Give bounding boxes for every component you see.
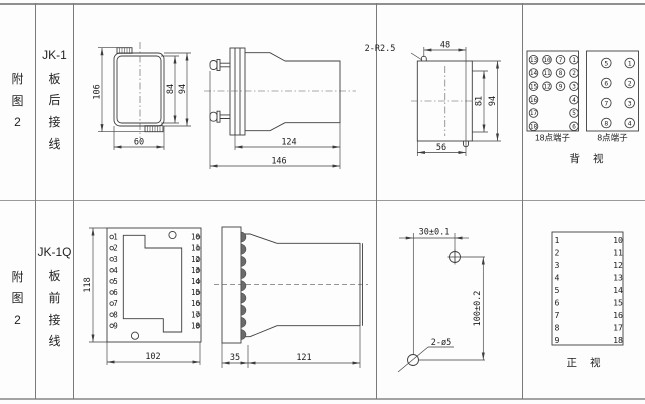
model-name: JK-1 bbox=[42, 48, 67, 62]
dim-height: 118 bbox=[83, 277, 93, 292]
terminal-table-left: 1 2 3 4 5 6 7 8 9 bbox=[555, 235, 560, 345]
svg-text:1: 1 bbox=[555, 235, 560, 245]
dim-panel-depth: 35 bbox=[230, 353, 240, 363]
drawing-rear-side: 124 146 bbox=[200, 38, 362, 172]
drill-holes bbox=[398, 233, 485, 372]
svg-text:9: 9 bbox=[555, 335, 560, 345]
svg-text:2: 2 bbox=[113, 244, 118, 253]
svg-text:3: 3 bbox=[113, 255, 118, 264]
dim-inner-height: 81 bbox=[475, 96, 485, 106]
svg-text:3: 3 bbox=[572, 83, 576, 90]
svg-text:9: 9 bbox=[113, 321, 118, 330]
drawing-panel-cutout: 2-R2.5 48 81 94 56 bbox=[378, 40, 520, 162]
svg-text:18: 18 bbox=[613, 335, 623, 345]
svg-text:5: 5 bbox=[604, 59, 608, 67]
dim-outer-height: 94 bbox=[178, 84, 188, 94]
svg-text:11: 11 bbox=[191, 244, 200, 253]
cutout-outline bbox=[411, 56, 481, 147]
svg-text:7: 7 bbox=[559, 57, 563, 64]
svg-text:14: 14 bbox=[530, 70, 538, 77]
svg-text:10: 10 bbox=[613, 235, 623, 245]
svg-text:5: 5 bbox=[555, 285, 560, 295]
terminal-block-8-label: 8点端子 bbox=[597, 133, 628, 143]
drawing-terminals-rear: 13 10 7 1 14 11 8 2 15 12 9 3 16 4 17 5 … bbox=[523, 45, 645, 170]
svg-text:15: 15 bbox=[191, 288, 200, 297]
dim-width: 60 bbox=[134, 138, 144, 148]
svg-text:18: 18 bbox=[530, 123, 538, 130]
case-outline bbox=[114, 42, 164, 138]
svg-text:6: 6 bbox=[113, 288, 118, 297]
svg-text:12: 12 bbox=[543, 83, 551, 90]
slot-radius-note: 2-R2.5 bbox=[365, 44, 396, 54]
case-outline bbox=[107, 228, 201, 342]
mounting-hole-icon bbox=[131, 332, 138, 339]
dim-slot-span: 48 bbox=[440, 41, 450, 51]
svg-text:17: 17 bbox=[530, 110, 538, 117]
terminal-block-18-label: 18点端子 bbox=[535, 133, 570, 143]
drawing-front-side: 35 121 bbox=[212, 222, 370, 380]
hole-size-note: 2-ø5 bbox=[431, 338, 451, 348]
drawing-rear-outline: 106 84 94 60 bbox=[90, 35, 195, 160]
terminal-screws bbox=[241, 232, 246, 340]
svg-text:4: 4 bbox=[555, 273, 560, 283]
dim-body-length: 124 bbox=[281, 138, 296, 148]
svg-text:1: 1 bbox=[572, 57, 576, 64]
terminal-circle: 13 10 7 1 14 11 8 2 15 12 9 3 16 4 17 5 … bbox=[529, 55, 578, 130]
dim-outer-height: 94 bbox=[488, 96, 498, 106]
svg-text:7: 7 bbox=[555, 310, 560, 320]
svg-text:3: 3 bbox=[628, 99, 632, 107]
dim-inner-height: 84 bbox=[166, 84, 176, 94]
terminal-column-left: 1 2 3 4 5 6 7 8 9 bbox=[110, 233, 118, 331]
model-cell-top: JK-1 板后接线 bbox=[36, 3, 73, 200]
terminal-block-8: 5 1 6 2 7 3 8 4 8点端子 bbox=[587, 51, 639, 143]
svg-text:2: 2 bbox=[572, 70, 576, 77]
fig-label-cell-top: 附图2 bbox=[0, 3, 35, 200]
svg-text:7: 7 bbox=[113, 299, 118, 308]
fig-label: 附图2 bbox=[11, 69, 25, 134]
svg-text:13: 13 bbox=[613, 273, 623, 283]
dim-total-length: 146 bbox=[271, 157, 286, 167]
svg-text:4: 4 bbox=[628, 119, 632, 127]
drawing-drill-template: 30±0.1 100±0.2 2-ø5 bbox=[390, 215, 520, 383]
svg-text:16: 16 bbox=[530, 97, 538, 104]
figure-sheet: 附图2 JK-1 板后接线 附图2 JK-1Q 板前接线 bbox=[0, 0, 645, 404]
svg-text:2: 2 bbox=[555, 248, 560, 258]
svg-text:13: 13 bbox=[530, 57, 538, 64]
svg-text:8: 8 bbox=[555, 323, 560, 333]
svg-text:12: 12 bbox=[613, 260, 623, 270]
svg-text:8: 8 bbox=[113, 310, 118, 319]
dim-width: 102 bbox=[145, 352, 160, 362]
svg-text:17: 17 bbox=[613, 323, 623, 333]
svg-text:5: 5 bbox=[113, 277, 118, 286]
relay-body bbox=[204, 48, 356, 135]
dim-hole-vspan: 100±0.2 bbox=[473, 291, 483, 327]
svg-text:16: 16 bbox=[191, 299, 201, 308]
terminal-block-18: 13 10 7 1 14 11 8 2 15 12 9 3 16 4 17 5 … bbox=[527, 51, 579, 143]
svg-text:4: 4 bbox=[113, 266, 118, 275]
svg-text:3: 3 bbox=[555, 260, 560, 270]
svg-text:4: 4 bbox=[572, 97, 576, 104]
wiring-type: 板前接线 bbox=[48, 266, 62, 352]
dimensions: 124 146 bbox=[210, 71, 340, 169]
rear-view-label: 背 视 bbox=[570, 152, 609, 165]
relay-body bbox=[214, 227, 368, 343]
svg-text:8: 8 bbox=[559, 70, 563, 77]
svg-text:14: 14 bbox=[613, 285, 623, 295]
svg-text:15: 15 bbox=[530, 83, 538, 90]
dim-overall-height: 106 bbox=[93, 84, 103, 99]
model-cell-bottom: JK-1Q 板前接线 bbox=[36, 200, 73, 398]
svg-text:8: 8 bbox=[604, 119, 608, 127]
svg-text:2: 2 bbox=[628, 79, 632, 87]
svg-text:10: 10 bbox=[543, 57, 551, 64]
table-line-v3 bbox=[376, 3, 377, 399]
svg-text:6: 6 bbox=[555, 298, 560, 308]
drawing-terminals-front: 1 2 3 4 5 6 7 8 9 10 11 12 13 14 15 16 1… bbox=[540, 225, 642, 375]
dim-body-length: 121 bbox=[296, 353, 311, 363]
svg-text:17: 17 bbox=[191, 310, 200, 319]
model-name: JK-1Q bbox=[37, 245, 71, 259]
table-border-bottom bbox=[0, 398, 645, 400]
svg-text:6: 6 bbox=[572, 123, 576, 130]
drawing-front-outline: 1 2 3 4 5 6 7 8 9 10 11 12 13 14 15 16 1… bbox=[85, 220, 211, 372]
wiring-type: 板后接线 bbox=[48, 69, 62, 155]
svg-text:18: 18 bbox=[191, 321, 201, 330]
svg-text:11: 11 bbox=[613, 248, 623, 258]
table-border-top bbox=[0, 3, 645, 5]
dim-width: 56 bbox=[436, 143, 446, 153]
front-view-label: 正 视 bbox=[567, 356, 606, 369]
terminal-circle: 5 1 6 2 7 3 8 4 bbox=[602, 58, 635, 128]
svg-text:5: 5 bbox=[572, 110, 576, 117]
dimensions: 106 84 94 60 bbox=[93, 48, 192, 150]
mounting-hole-icon bbox=[169, 231, 176, 238]
svg-text:15: 15 bbox=[613, 298, 623, 308]
dimensions: 118 102 bbox=[83, 228, 200, 365]
svg-text:10: 10 bbox=[191, 233, 201, 242]
svg-text:9: 9 bbox=[559, 83, 563, 90]
fig-label: 附图2 bbox=[11, 267, 25, 332]
table-line-v2 bbox=[73, 3, 74, 399]
svg-text:12: 12 bbox=[191, 255, 200, 264]
svg-text:1: 1 bbox=[113, 233, 118, 242]
dimensions: 2-R2.5 48 81 94 56 bbox=[365, 41, 501, 157]
svg-text:11: 11 bbox=[543, 70, 551, 77]
svg-text:13: 13 bbox=[191, 266, 200, 275]
terminal-column-right: 10 11 12 13 14 15 16 17 18 bbox=[191, 233, 201, 331]
svg-text:7: 7 bbox=[604, 99, 608, 107]
table-border-middle bbox=[0, 200, 645, 201]
dim-hole-hspan: 30±0.1 bbox=[419, 228, 450, 238]
svg-text:16: 16 bbox=[613, 310, 623, 320]
fig-label-cell-bottom: 附图2 bbox=[0, 200, 35, 398]
svg-text:1: 1 bbox=[628, 59, 632, 67]
dimensions: 30±0.1 100±0.2 2-ø5 bbox=[399, 228, 483, 361]
svg-text:6: 6 bbox=[604, 79, 608, 87]
terminal-table-right: 10 11 12 13 14 15 16 17 18 bbox=[613, 235, 623, 345]
svg-text:14: 14 bbox=[191, 277, 201, 286]
